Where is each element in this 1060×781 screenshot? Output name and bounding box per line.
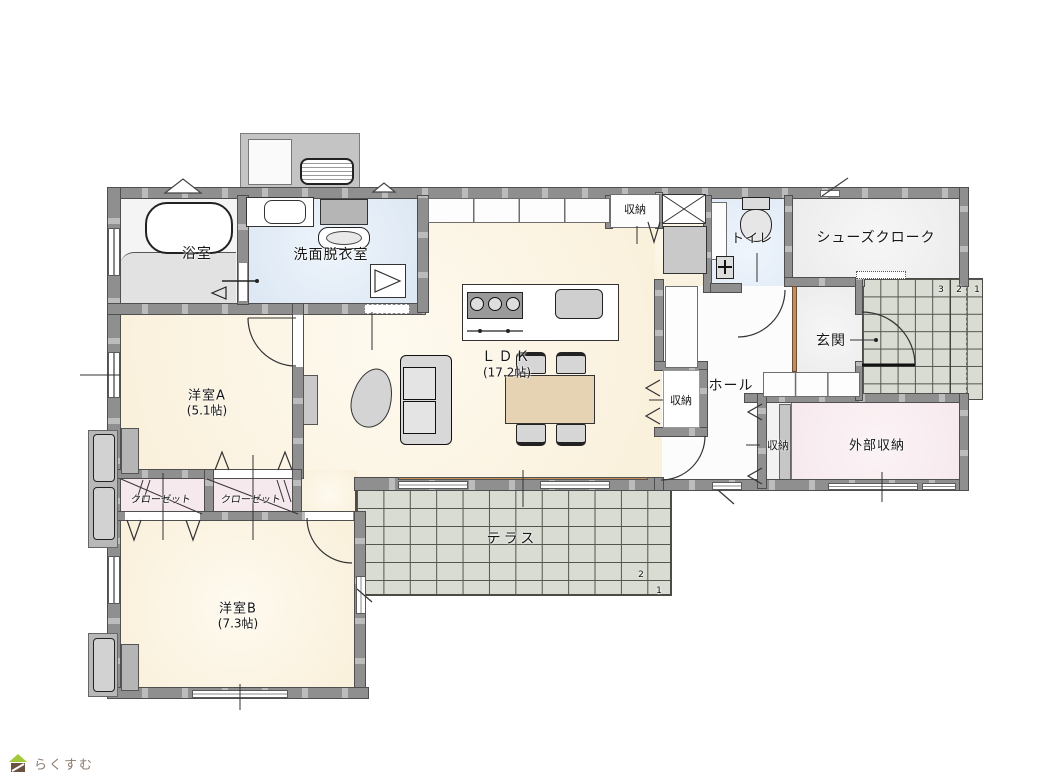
wall-external-storage-east (960, 394, 968, 490)
toilet-label: トイレ (731, 228, 773, 247)
stove-burner-1 (470, 297, 484, 311)
house-icon (8, 753, 28, 773)
closet-1-label: クローゼット (130, 491, 192, 506)
shoe-closet-shelf-dotted (856, 271, 906, 279)
entrance-wood-partition (792, 286, 797, 372)
dining-table (505, 375, 595, 424)
kitchen-wall-cabinets (428, 198, 610, 223)
bathroom-label: 浴室 (182, 243, 212, 263)
external-storage-label: 外部収納 (849, 435, 905, 454)
ldk-terrace-door-2 (540, 481, 610, 489)
vanity-bowl (264, 200, 306, 224)
room-b-left-window (108, 556, 120, 604)
storage-lower-label: 収納 (767, 437, 789, 453)
wall-niche-bottom (655, 428, 707, 436)
wall-shoe-closet-east (960, 188, 968, 286)
house-icon-roof (9, 754, 27, 762)
wall-washroom-east (418, 196, 428, 312)
toilet-cabinet (711, 202, 727, 260)
wall-niche-east (700, 370, 707, 428)
porch-tiles (862, 278, 983, 400)
sofa-cushion-1 (403, 367, 436, 400)
porch-step-3: 3 (938, 285, 944, 295)
pipe-space-box (662, 194, 706, 224)
room-b-south-window (192, 690, 288, 698)
room-a-area-label: (5.1帖) (187, 402, 227, 419)
dining-chair-3 (516, 424, 546, 446)
room-b-east-window (356, 576, 366, 614)
bathroom-washplace (120, 252, 236, 305)
sofa-cushion-2 (403, 401, 436, 434)
room-b-area-label: (7.3帖) (218, 615, 258, 632)
washer-monitor (320, 199, 368, 225)
washing-machine-drum (326, 231, 362, 245)
shoe-closet-top-window (820, 190, 840, 197)
ac-indoor-room-a (121, 428, 139, 474)
porch-step-line-solid (950, 278, 951, 400)
washroom-pan-box (370, 264, 406, 298)
porch-step-line-dashed (966, 278, 967, 400)
hall-south-arrow (718, 490, 734, 504)
wall-shoe-closet-south (785, 278, 864, 286)
refrigerator (663, 226, 707, 274)
wall-external-storage-west (758, 394, 766, 488)
storage-hall-label: 収納 (670, 392, 692, 408)
washroom-slide-door-gap (364, 304, 410, 314)
room-b-door-gap (305, 512, 353, 520)
wall-toilet-south (711, 284, 741, 292)
terrace-step-1: 1 (656, 586, 662, 596)
closet-2-label: クローゼット (220, 491, 282, 506)
site-logo: らくすむ (8, 753, 94, 773)
hall-south-window (712, 482, 742, 490)
ldk-area-label: (17.2帖) (483, 364, 531, 381)
terrace-deck-edge (398, 477, 648, 480)
shoe-closet-label: シューズクローク (816, 227, 935, 247)
ac-indoor-room-b (121, 644, 139, 691)
site-logo-text: らくすむ (34, 754, 94, 773)
washroom-label: 洗面脱衣室 (294, 244, 369, 264)
terrace-step-2: 2 (638, 570, 644, 580)
water-heater-unit (300, 158, 354, 185)
porch-step-1: 1 (974, 285, 980, 295)
dining-chair-2 (556, 352, 586, 374)
ldk-terrace-door-1 (398, 481, 468, 489)
dining-chair-4 (556, 424, 586, 446)
stove-burner-2 (488, 297, 502, 311)
wall-ldk-east-upper (655, 280, 663, 370)
external-storage-south-window (828, 483, 918, 490)
closet-1-opening (125, 512, 200, 520)
hall-label: ホール (709, 375, 754, 395)
utility-box (248, 139, 292, 185)
wall-ldk-east-stub (655, 478, 663, 490)
toilet-hand-basin (716, 256, 734, 279)
hall-cabinet (665, 286, 698, 368)
wall-toilet-east (785, 196, 792, 286)
entrance-label: 玄関 (816, 330, 846, 350)
floor-plan-image: 浴室 洗面脱衣室 収納 トイレ シューズクローク 玄関 ホール 収納 収納 外部… (0, 0, 1060, 781)
sink (555, 289, 603, 319)
bath-slide-door-gap (238, 262, 248, 302)
ac-outdoor-unit-2 (93, 487, 115, 540)
shoe-cabinet (763, 372, 860, 397)
room-a-door-gap (293, 315, 303, 367)
porch-step-2: 2 (956, 285, 962, 295)
ac-outdoor-unit-3 (93, 638, 115, 692)
ac-unit-room-a-east (303, 375, 318, 425)
wall-porch-stub-top (856, 278, 862, 314)
storage-top-label: 収納 (624, 201, 646, 217)
terrace-label: テラス (487, 528, 538, 548)
bathroom-window (108, 228, 120, 276)
external-storage-south-window-2 (922, 483, 956, 490)
stove-burner-3 (506, 297, 520, 311)
room-a-window (108, 352, 120, 398)
ac-outdoor-unit-1 (93, 434, 115, 482)
closet-2-opening (212, 470, 292, 478)
